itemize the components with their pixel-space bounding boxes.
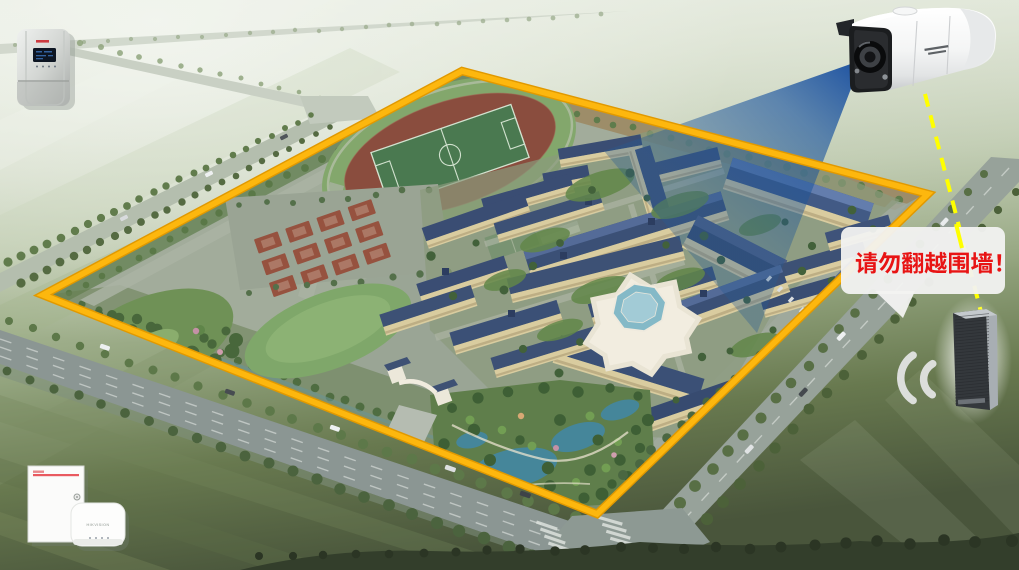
svg-text:HIKVISION: HIKVISION: [86, 522, 109, 527]
